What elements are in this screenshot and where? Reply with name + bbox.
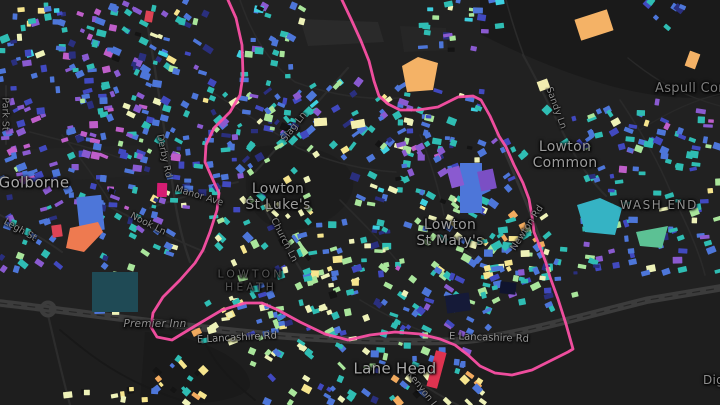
place-label-premier-inn: Premier Inn — [124, 318, 187, 330]
place-label-lowton-common: LowtonCommon — [533, 139, 598, 171]
place-label-lowton-heath: LOWTONHEATH — [218, 268, 285, 293]
place-label-aspull-common: Aspull Common — [655, 82, 720, 97]
place-labels-layer: GolborneLowtonSt Luke'sLowtonSt Mary'sLo… — [0, 0, 720, 405]
place-label-wash-end: WASH END — [620, 199, 698, 213]
place-label-lane-head: Lane Head — [354, 360, 437, 377]
place-label-dig: Dig — [703, 374, 720, 388]
place-label-golborne: Golborne — [0, 174, 69, 191]
place-label-lowton-st-lukes: LowtonSt Luke's — [245, 181, 310, 213]
place-label-lowton-st-marys: LowtonSt Mary's — [416, 217, 483, 249]
map-canvas[interactable]: Park StDerby RdManor AveNook LnLegh StSl… — [0, 0, 720, 405]
